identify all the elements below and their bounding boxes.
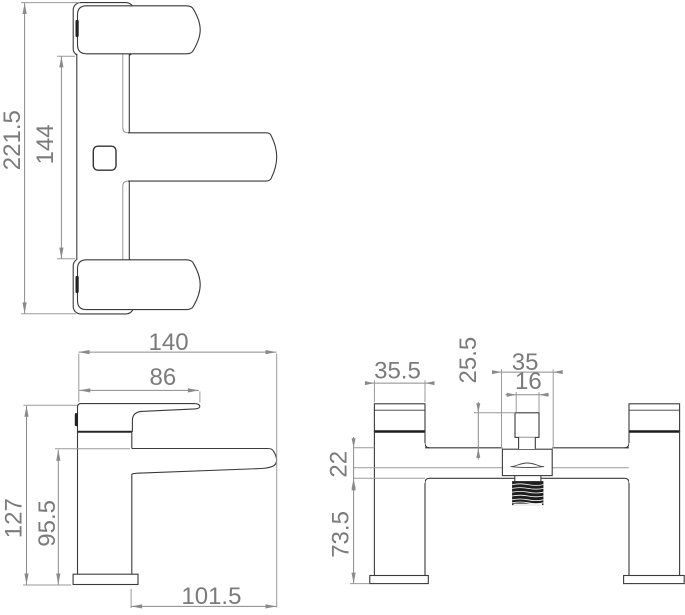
svg-text:16: 16: [515, 368, 542, 395]
svg-text:35.5: 35.5: [374, 358, 421, 385]
svg-text:73.5: 73.5: [327, 511, 354, 558]
svg-text:221.5: 221.5: [0, 110, 26, 170]
svg-text:144: 144: [32, 124, 59, 164]
svg-text:25.5: 25.5: [455, 337, 482, 384]
svg-text:101.5: 101.5: [181, 583, 241, 610]
svg-text:86: 86: [150, 364, 177, 391]
svg-text:95.5: 95.5: [34, 500, 61, 547]
svg-text:127: 127: [0, 498, 27, 538]
svg-text:140: 140: [149, 329, 189, 356]
svg-text:22: 22: [325, 451, 352, 478]
